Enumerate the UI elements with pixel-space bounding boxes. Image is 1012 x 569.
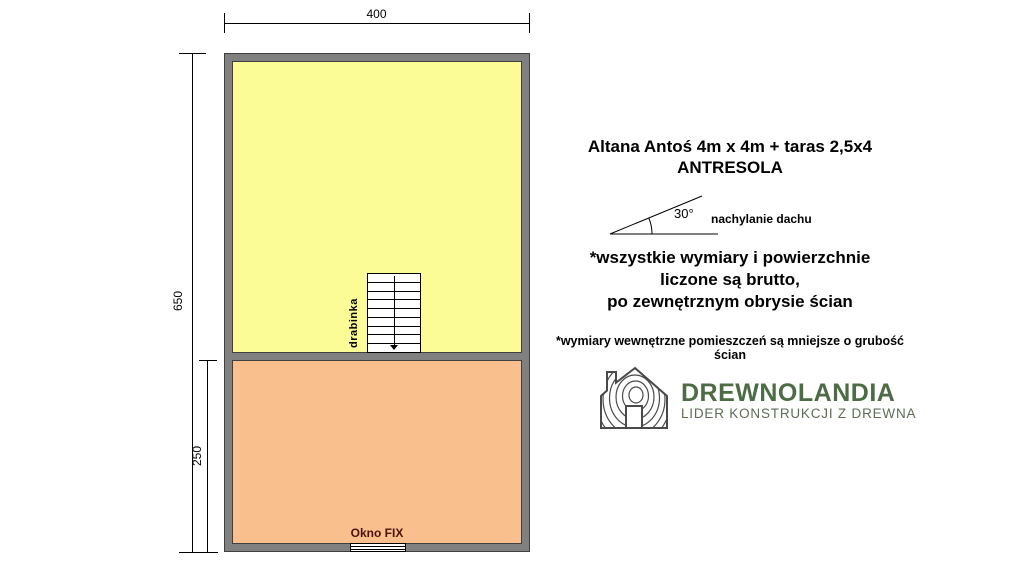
dimension-tick <box>199 360 217 361</box>
dimension-label-height-lower: 250 <box>190 436 204 476</box>
dimension-label-width: 400 <box>340 7 413 21</box>
dimension-label-height-total: 650 <box>171 281 185 321</box>
roof-angle-value: 30° <box>674 206 694 221</box>
ladder-direction-arrow-icon <box>390 345 398 350</box>
room-taras <box>232 360 522 544</box>
dimension-tick <box>179 552 218 553</box>
logo-tagline: LIDER KONSTRUKCJI Z DREWNA <box>681 406 916 422</box>
notes-block: *wszystkie wymiary i powierzchnie liczon… <box>554 247 906 313</box>
note-line: po zewnętrznym obrysie ścian <box>554 291 906 313</box>
window-glazing-line <box>351 549 405 550</box>
logo-text-block: DREWNOLANDIA LIDER KONSTRUKCJI Z DREWNA <box>681 381 916 422</box>
house-door <box>626 406 642 428</box>
ladder-label: drabinka <box>348 284 360 348</box>
roof-slope-label: nachylanie dachu <box>711 212 812 226</box>
title-block: Altana Antoś 4m x 4m + taras 2,5x4 ANTRE… <box>560 136 900 178</box>
dimension-tick <box>179 53 206 54</box>
roof-slope-diagram: 30° <box>608 188 728 240</box>
page-title: Altana Antoś 4m x 4m + taras 2,5x4 <box>560 136 900 157</box>
footnote: *wymiary wewnętrzne pomieszczeń są mniej… <box>540 334 920 362</box>
drewnolandia-logo-house-icon <box>599 366 669 430</box>
window-fix-symbol <box>350 543 406 552</box>
dimension-tick <box>529 13 530 33</box>
angle-arc <box>649 218 652 234</box>
floor-plan-page: 400 650 250 drabinka Okno FIX Altana <box>0 0 1012 569</box>
dimension-line-height-lower <box>207 360 208 552</box>
page-subtitle: ANTRESOLA <box>560 157 900 178</box>
logo-brand-name: DREWNOLANDIA <box>681 381 916 406</box>
note-line: *wszystkie wymiary i powierzchnie <box>554 247 906 269</box>
window-label: Okno FIX <box>329 526 425 540</box>
dimension-line-width <box>224 23 530 24</box>
note-line: liczone są brutto, <box>554 269 906 291</box>
window-glazing-line <box>351 546 405 547</box>
dimension-tick <box>224 13 225 33</box>
dimension-line-height-total <box>192 53 193 552</box>
ladder-direction-line <box>394 276 395 345</box>
